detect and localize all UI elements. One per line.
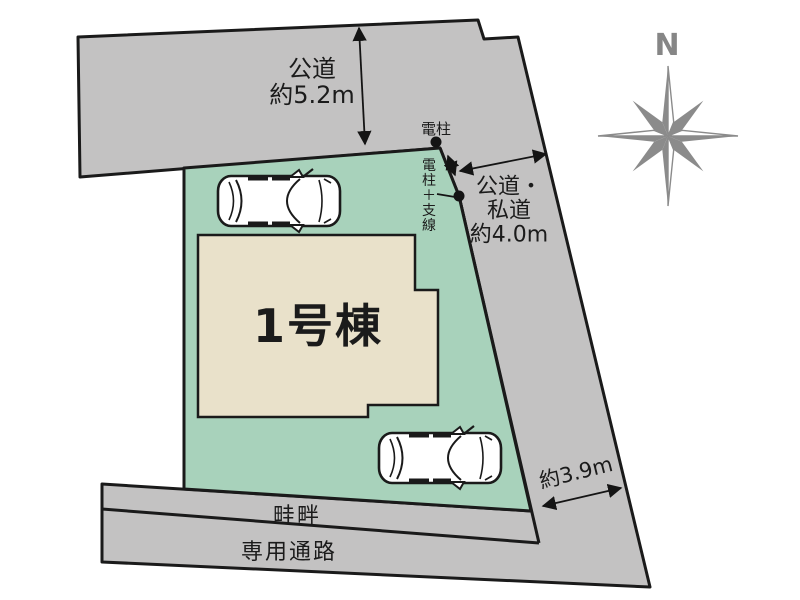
utility-pole-dot: [431, 137, 442, 148]
ridge-label: 畦畔: [273, 505, 321, 529]
utility-pole-wire-label: 電柱＋支線: [421, 158, 435, 233]
right-road-width: 約4.0m: [470, 222, 548, 247]
car-icon: [379, 426, 501, 489]
site-plan-drawing: [0, 0, 800, 600]
utility-pole-label: 電柱: [421, 121, 451, 137]
right-road-name-1: 公道・: [476, 174, 542, 199]
passage-label: 専用通路: [241, 541, 337, 565]
utility-pole-wire-dot: [454, 191, 465, 202]
top-road-dimension-label: 公道約5.2m: [269, 57, 355, 109]
building-label: 1号棟: [253, 302, 383, 352]
compass-rose-icon: [598, 66, 738, 206]
right-road-name-2: 私道: [487, 198, 531, 223]
site-plan-canvas: 公道約5.2m 電柱 電柱＋支線 公道・私道約4.0m 1号棟 約3.9m 畦畔…: [0, 0, 800, 600]
top-road-width: 約5.2m: [269, 81, 355, 109]
top-road-name: 公道: [288, 55, 336, 83]
right-road-dimension-label: 公道・私道約4.0m: [470, 175, 548, 246]
compass-north-label: N: [654, 30, 679, 62]
car-icon: [218, 169, 340, 232]
